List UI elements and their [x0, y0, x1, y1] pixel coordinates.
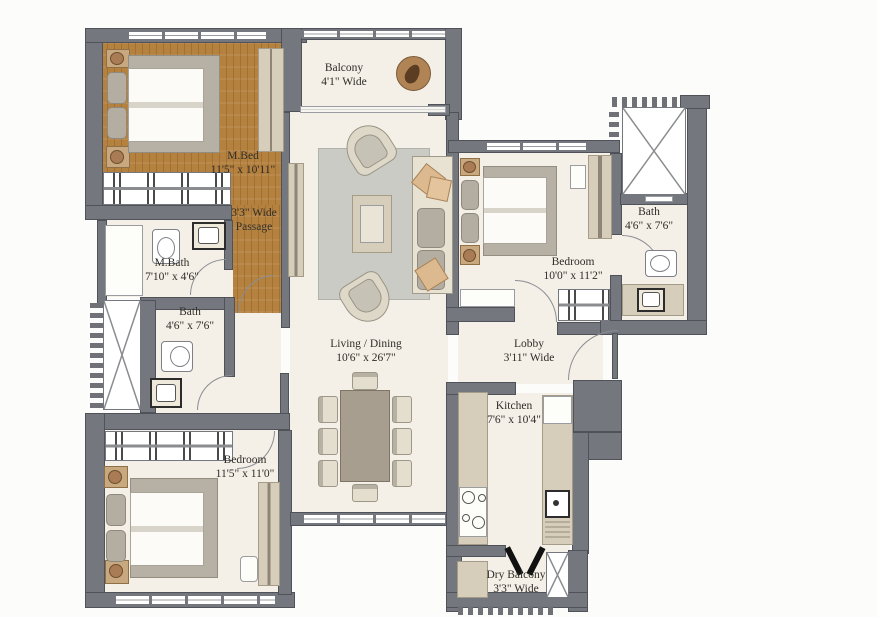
window — [125, 31, 267, 40]
low-cabinet — [460, 289, 515, 307]
corridor-floor — [230, 313, 281, 413]
window — [483, 142, 587, 151]
wall — [572, 432, 589, 554]
fridge — [543, 396, 572, 424]
pillow — [106, 530, 126, 562]
sink-basin — [156, 384, 176, 402]
dining-chair — [352, 372, 378, 390]
plant-icon — [396, 56, 431, 91]
window — [300, 514, 446, 524]
desk-unit — [588, 155, 612, 239]
wall — [446, 307, 515, 322]
window — [112, 595, 276, 605]
label-bath-left: Bath4'6" x 7'6" — [166, 305, 214, 334]
pillow — [107, 107, 127, 139]
mattress — [130, 492, 204, 566]
lamp-icon — [463, 249, 476, 262]
wall — [281, 28, 302, 112]
burner — [462, 491, 475, 504]
mattress — [128, 68, 204, 142]
drain — [553, 500, 559, 506]
pillow — [107, 72, 127, 104]
label-dry-balcony: Dry Balcony3'3" Wide — [486, 568, 545, 597]
toilet-bowl — [650, 255, 670, 272]
wardrobe-hangers — [105, 431, 233, 461]
dining-chair — [318, 396, 338, 423]
sink-basin — [642, 292, 660, 307]
entrance-door-leaf — [612, 333, 618, 379]
burner — [478, 494, 486, 502]
shaft-x-icon — [546, 552, 569, 598]
label-bedroom-right: Bedroom10'0" x 11'2" — [543, 255, 602, 284]
wall — [573, 380, 622, 432]
wall — [610, 275, 622, 322]
lamp-icon — [109, 564, 123, 578]
wardrobe-hangers — [558, 289, 610, 321]
dining-chair — [392, 428, 412, 455]
sink-basin — [198, 227, 219, 244]
lamp-icon — [463, 161, 476, 173]
wall — [85, 413, 105, 608]
shaft-x-icon — [622, 107, 686, 195]
label-bedroom-left: Bedroom11'5" x 11'0" — [216, 453, 275, 482]
drainboard — [545, 521, 570, 541]
wall — [85, 413, 290, 430]
label-bath-right: Bath4'6" x 7'6" — [625, 205, 673, 234]
wall — [85, 28, 103, 218]
dining-chair — [318, 460, 338, 487]
dining-chair — [352, 484, 378, 502]
dining-table — [340, 390, 390, 482]
burner — [462, 514, 470, 522]
burner — [472, 516, 485, 529]
label-m-bed: M.Bed11'5" x 10'11" — [211, 149, 275, 178]
lamp-icon — [108, 470, 122, 484]
lamp-icon — [110, 52, 124, 65]
label-m-bath: M.Bath7'10" x 4'6" — [145, 256, 199, 285]
label-lobby: Lobby3'11" Wide — [504, 337, 555, 366]
wall — [687, 95, 707, 335]
throw-pillow — [426, 176, 452, 202]
pillow — [461, 213, 479, 243]
label-passage: 3'3" WidePassage — [231, 206, 276, 235]
label-living-dining: Living / Dining10'6" x 26'7" — [330, 337, 402, 366]
shower-area — [105, 225, 143, 296]
vent-hatch — [90, 303, 103, 409]
vent-hatch — [612, 97, 680, 107]
pillow — [106, 494, 126, 526]
dining-chair — [392, 396, 412, 423]
mbed-wardrobe-unit — [258, 48, 284, 152]
balcony-sliding-door — [300, 106, 446, 113]
coffee-table-top — [360, 205, 384, 243]
mattress — [483, 177, 547, 244]
lamp-icon — [110, 150, 124, 164]
wall — [85, 205, 232, 220]
wall — [224, 297, 235, 377]
dresser — [570, 165, 586, 189]
vent-hatch — [458, 606, 555, 615]
label-balcony: Balcony4'1" Wide — [321, 61, 366, 90]
label-kitchen: Kitchen7'6" x 10'4" — [487, 399, 541, 428]
floor-plan: Balcony4'1" Wide M.Bed11'5" x 10'11" 3'3… — [0, 0, 877, 617]
tv-unit — [288, 163, 304, 277]
shaft-slit — [645, 196, 673, 202]
dining-chair — [318, 428, 338, 455]
toilet-bowl — [170, 346, 190, 367]
desk-unit — [258, 482, 280, 586]
window — [300, 30, 446, 38]
utility-unit — [457, 561, 488, 598]
chair — [240, 556, 258, 582]
wall — [446, 545, 506, 557]
vent-hatch — [609, 112, 619, 138]
pillow — [461, 180, 479, 210]
dining-chair — [392, 460, 412, 487]
shaft-x-icon — [103, 300, 141, 410]
sofa-cushion — [417, 208, 445, 248]
